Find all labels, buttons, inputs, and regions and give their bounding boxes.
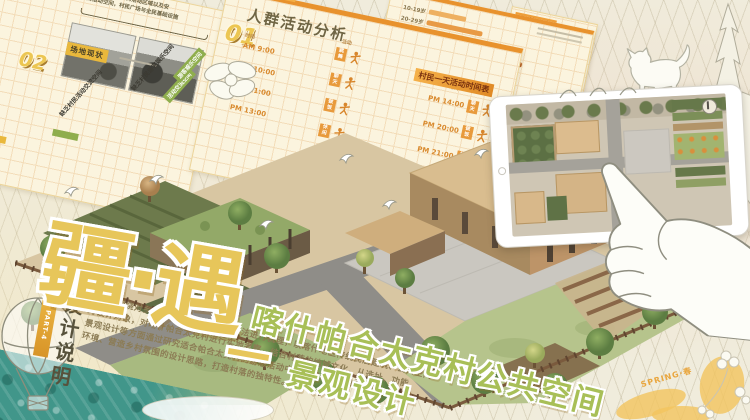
plan-hedge	[672, 111, 722, 122]
timeline-activity: 聊天	[329, 72, 358, 90]
section-number-02: 02	[17, 46, 49, 75]
poster-root: 社区中缺乏给村民的活动区域以及安 静的活动空间，村民广场与全民基础设施 场地现状…	[0, 0, 750, 420]
plan-path	[673, 122, 723, 132]
activity-column-header: 活动	[341, 38, 352, 47]
plan-flower-lawn	[673, 131, 724, 160]
plan-yard	[547, 196, 568, 221]
plan-building-a	[555, 120, 601, 154]
mini-chip-yellow	[0, 132, 7, 144]
activity-chip: 跳舞	[334, 47, 347, 62]
panel-tab	[256, 0, 297, 2]
compass-needle	[707, 101, 709, 109]
timeline-highlight-label: 村民一天活动时间表	[413, 68, 494, 97]
tablet-camera-dot	[498, 167, 506, 175]
activity-panel-title: 人群活动分析	[245, 4, 349, 46]
person-activity-icon	[342, 75, 357, 90]
plan-building-c	[514, 191, 546, 225]
age-note-lines	[538, 27, 583, 39]
motion-scribbles	[556, 84, 656, 102]
pointing-hand	[577, 160, 750, 342]
person-activity-icon	[348, 50, 363, 65]
activity-chip: 聊天	[329, 72, 342, 87]
timeline-activity: 跳舞	[334, 47, 363, 65]
